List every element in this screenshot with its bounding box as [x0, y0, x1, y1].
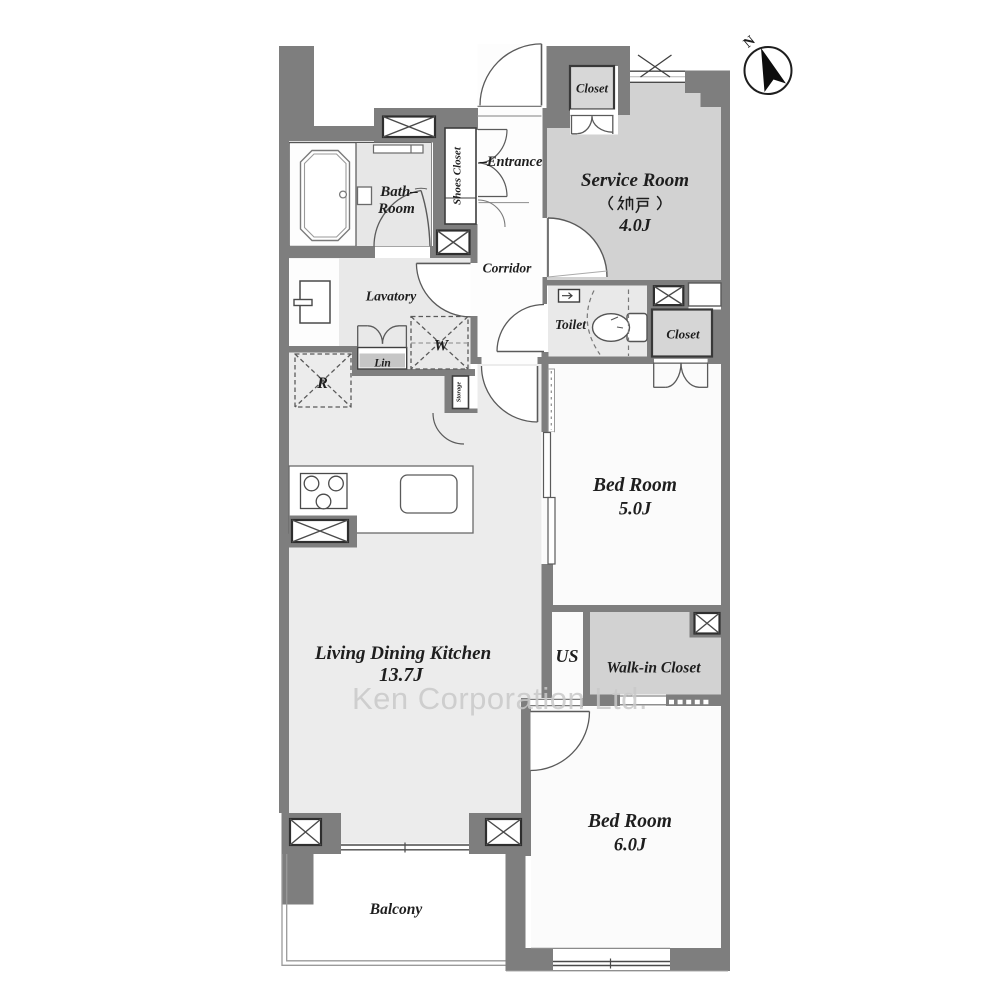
svg-text:–Entrance: –Entrance — [479, 154, 543, 170]
svg-text:4.0J: 4.0J — [618, 215, 652, 235]
svg-text:Closet: Closet — [576, 82, 608, 96]
svg-text:Bed Room: Bed Room — [592, 475, 677, 496]
svg-text:Shoes Closet: Shoes Closet — [452, 146, 464, 205]
svg-text:Room: Room — [377, 201, 415, 217]
svg-text:Toilet: Toilet — [555, 317, 587, 332]
svg-text:Lavatory: Lavatory — [365, 289, 417, 304]
svg-text:Service Room: Service Room — [581, 170, 689, 191]
svg-text:6.0J: 6.0J — [614, 836, 647, 856]
svg-text:Walk-in Closet: Walk-in Closet — [606, 660, 701, 677]
svg-text:Balcony: Balcony — [369, 901, 423, 918]
svg-text:Bed Room: Bed Room — [587, 811, 672, 832]
svg-text:Lin: Lin — [373, 358, 391, 370]
svg-text:Ken Corporation Ltd.: Ken Corporation Ltd. — [352, 681, 648, 716]
svg-text:Corridor: Corridor — [483, 261, 533, 276]
svg-text:US: US — [555, 646, 578, 666]
svg-text:W: W — [434, 338, 450, 355]
svg-text:Living Dining Kitchen: Living Dining Kitchen — [314, 643, 491, 664]
svg-text:5.0J: 5.0J — [619, 500, 652, 520]
svg-text:Closet: Closet — [666, 327, 700, 342]
svg-text:R: R — [316, 375, 328, 392]
svg-text:Storage: Storage — [456, 382, 463, 403]
svg-text:Bath–: Bath– — [379, 184, 418, 200]
